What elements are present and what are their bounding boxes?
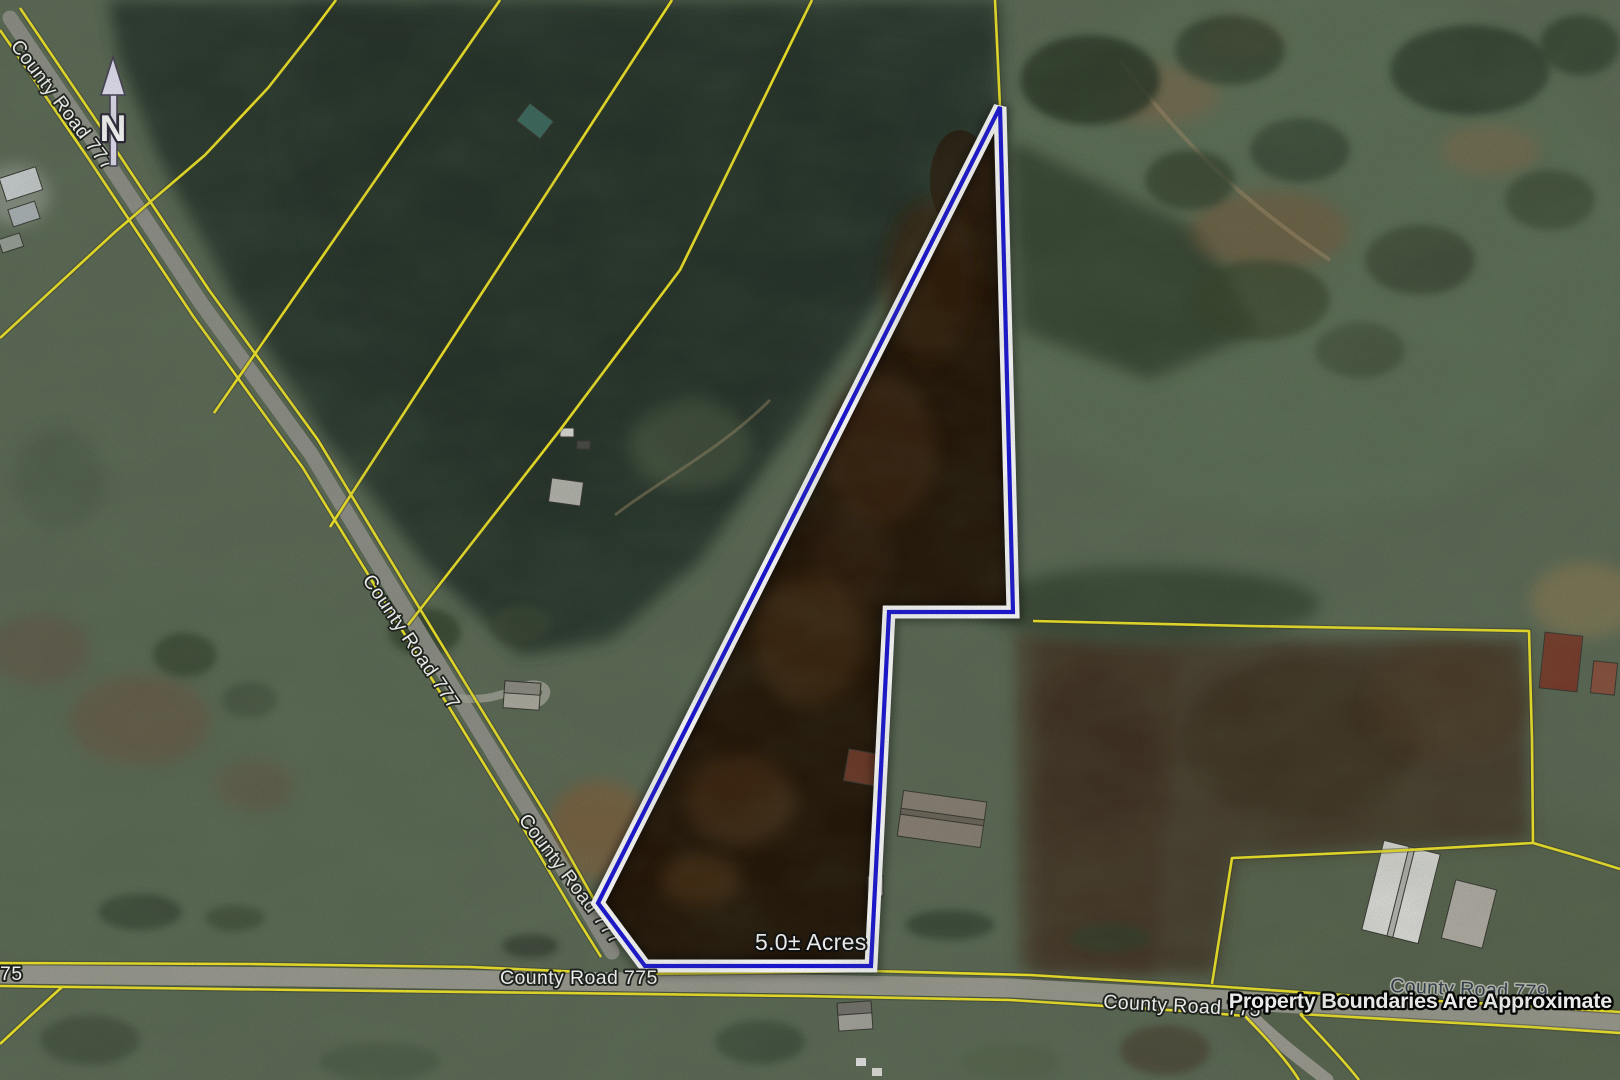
- satellite-imagery: [0, 0, 1620, 1080]
- road-775-label-center: County Road 775: [500, 967, 658, 989]
- property-map: County Road 777 County Road 777 County R…: [0, 0, 1620, 1080]
- north-arrow-letter: N: [100, 108, 127, 149]
- map-canvas[interactable]: County Road 777 County Road 777 County R…: [0, 0, 1620, 1080]
- road-775-label-partial: 75: [0, 963, 23, 985]
- disclaimer-text: Property Boundaries Are Approximate: [1229, 989, 1613, 1013]
- parcel-acreage-label: 5.0± Acres: [755, 929, 867, 955]
